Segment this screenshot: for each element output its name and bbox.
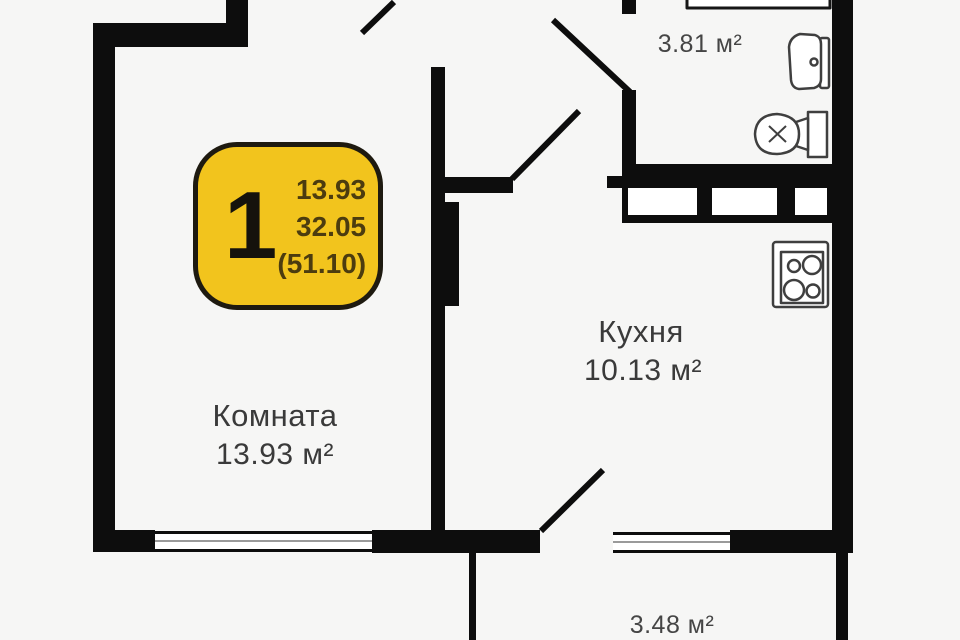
unit-badge: 1 13.93 32.05 (51.10) (193, 142, 383, 310)
wall-bottom-kitchen-right (730, 530, 853, 553)
unit-badge-area-line-1: 13.93 (277, 171, 366, 208)
kitchen-area-label: 10.13 м² (584, 354, 702, 389)
duct-cell-2 (712, 188, 777, 215)
room-door-leaf (512, 111, 579, 179)
floor-plan-canvas: 1 13.93 32.05 (51.10) 3.81 м² Кухня 10.1… (0, 0, 960, 640)
living-room-area-label: 13.93 м² (216, 438, 334, 473)
balcony-area-label: 3.48 м² (630, 611, 715, 640)
doors (362, 2, 630, 531)
toilet-icon (755, 112, 827, 157)
bathtub-icon (687, 0, 830, 8)
wall-bottom-room-left (93, 530, 155, 552)
duct-cell-3 (795, 188, 827, 215)
wall-bathroom-left (622, 90, 636, 188)
room-window (155, 531, 372, 552)
unit-badge-areas: 13.93 32.05 (51.10) (277, 171, 366, 282)
wall-bottom-middle (372, 530, 540, 553)
stove-icon (773, 242, 828, 307)
wall-right-exterior (832, 0, 853, 553)
wall-middle-pilaster (437, 202, 459, 306)
unit-badge-area-line-2: 32.05 (277, 208, 366, 245)
wall-hall-door-jamb (445, 177, 513, 193)
wall-bathroom-left-stub (622, 0, 636, 14)
balcony-right-edge (836, 552, 848, 640)
balcony-left-edge (469, 552, 476, 640)
living-room-name-label: Комната (213, 398, 338, 434)
unit-badge-room-count: 1 (224, 183, 277, 269)
wall-top-stub (226, 0, 248, 47)
bathroom-area-label: 3.81 м² (658, 30, 743, 59)
kitchen-window (613, 532, 730, 553)
cropped-door-leaf (362, 2, 394, 33)
wall-top-room (93, 23, 248, 47)
entry-door-leaf (553, 20, 630, 92)
balcony-door-leaf (541, 470, 603, 531)
duct-cell-1 (628, 188, 697, 215)
floor-plan-drawing (0, 0, 960, 640)
sink-icon (789, 34, 829, 89)
kitchen-name-label: Кухня (598, 314, 683, 350)
wall-left-exterior (93, 23, 115, 552)
unit-badge-area-line-3: (51.10) (277, 245, 366, 282)
wall-bathroom-bottom (634, 164, 832, 188)
